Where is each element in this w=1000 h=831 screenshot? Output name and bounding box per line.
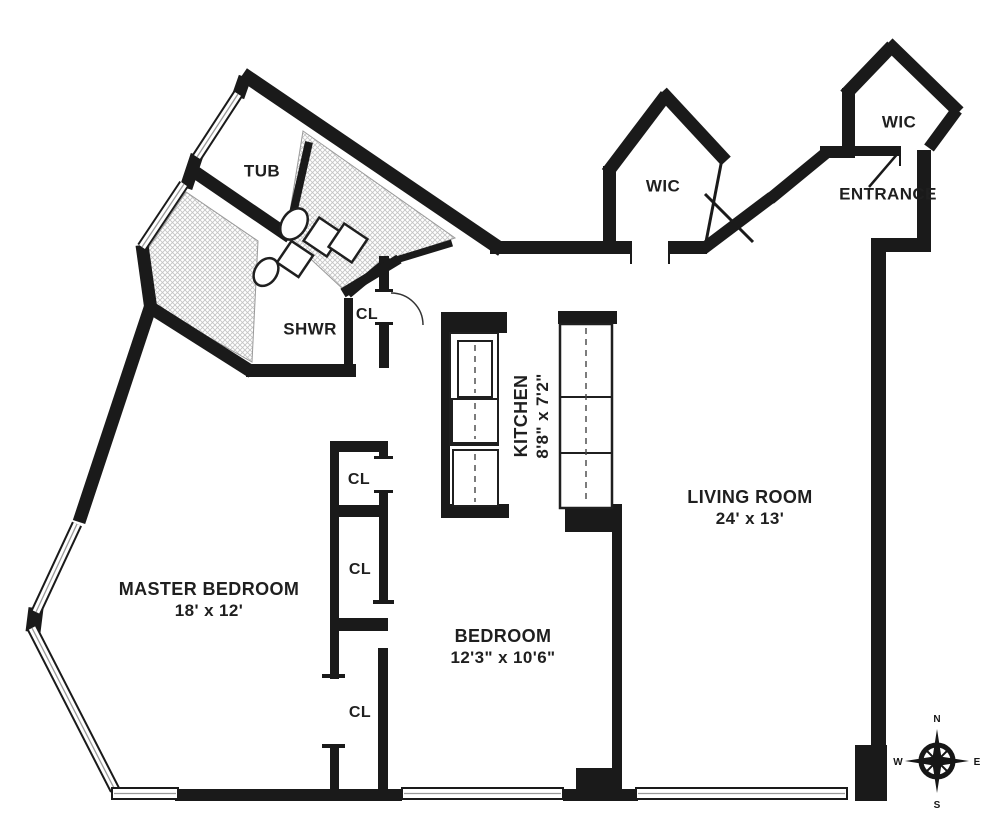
closet-label-2: CL bbox=[349, 562, 371, 578]
kitchen-dims: 8'8" x 7'2" bbox=[532, 373, 554, 458]
compass-rose-icon: N E S W bbox=[893, 714, 980, 811]
bedroom-dims: 12'3" x 10'6" bbox=[450, 647, 555, 669]
bedroom-name: BEDROOM bbox=[450, 625, 555, 647]
master-bedroom-name: MASTER BEDROOM bbox=[119, 578, 300, 600]
toilet-icon bbox=[248, 241, 313, 291]
master-bedroom-dims: 18' x 12' bbox=[119, 600, 300, 622]
living-room-label: LIVING ROOM 24' x 13' bbox=[687, 486, 812, 530]
floorplan-drawing: N E S W bbox=[0, 0, 1000, 831]
compass-west-label: W bbox=[893, 757, 903, 768]
kitchen-name: KITCHEN bbox=[510, 373, 532, 458]
living-room-dims: 24' x 13' bbox=[687, 508, 812, 530]
door-arc bbox=[391, 293, 423, 325]
entrance-label: ENTRANCE bbox=[839, 186, 937, 203]
living-room-name: LIVING ROOM bbox=[687, 486, 812, 508]
closet-label-3: CL bbox=[349, 705, 371, 721]
kitchen-label: KITCHEN 8'8" x 7'2" bbox=[510, 373, 554, 458]
closet-label-hall: CL bbox=[356, 307, 378, 323]
tub-label: TUB bbox=[244, 163, 280, 180]
kitchen-counter bbox=[450, 333, 498, 506]
closet-label-1: CL bbox=[348, 472, 370, 488]
floorplan-canvas: N E S W TUB SHWR CL CL CL CL WIC WIC ENT… bbox=[0, 0, 1000, 831]
compass-north-label: N bbox=[933, 714, 940, 725]
master-bedroom-label: MASTER BEDROOM 18' x 12' bbox=[119, 578, 300, 622]
compass-south-label: S bbox=[934, 800, 941, 811]
compass-east-label: E bbox=[974, 757, 981, 768]
kitchen-cabinets bbox=[560, 324, 612, 508]
wic-right-label: WIC bbox=[882, 114, 916, 131]
wic-left-label: WIC bbox=[646, 178, 680, 195]
shower-label: SHWR bbox=[283, 321, 337, 338]
bedroom-label: BEDROOM 12'3" x 10'6" bbox=[450, 625, 555, 669]
